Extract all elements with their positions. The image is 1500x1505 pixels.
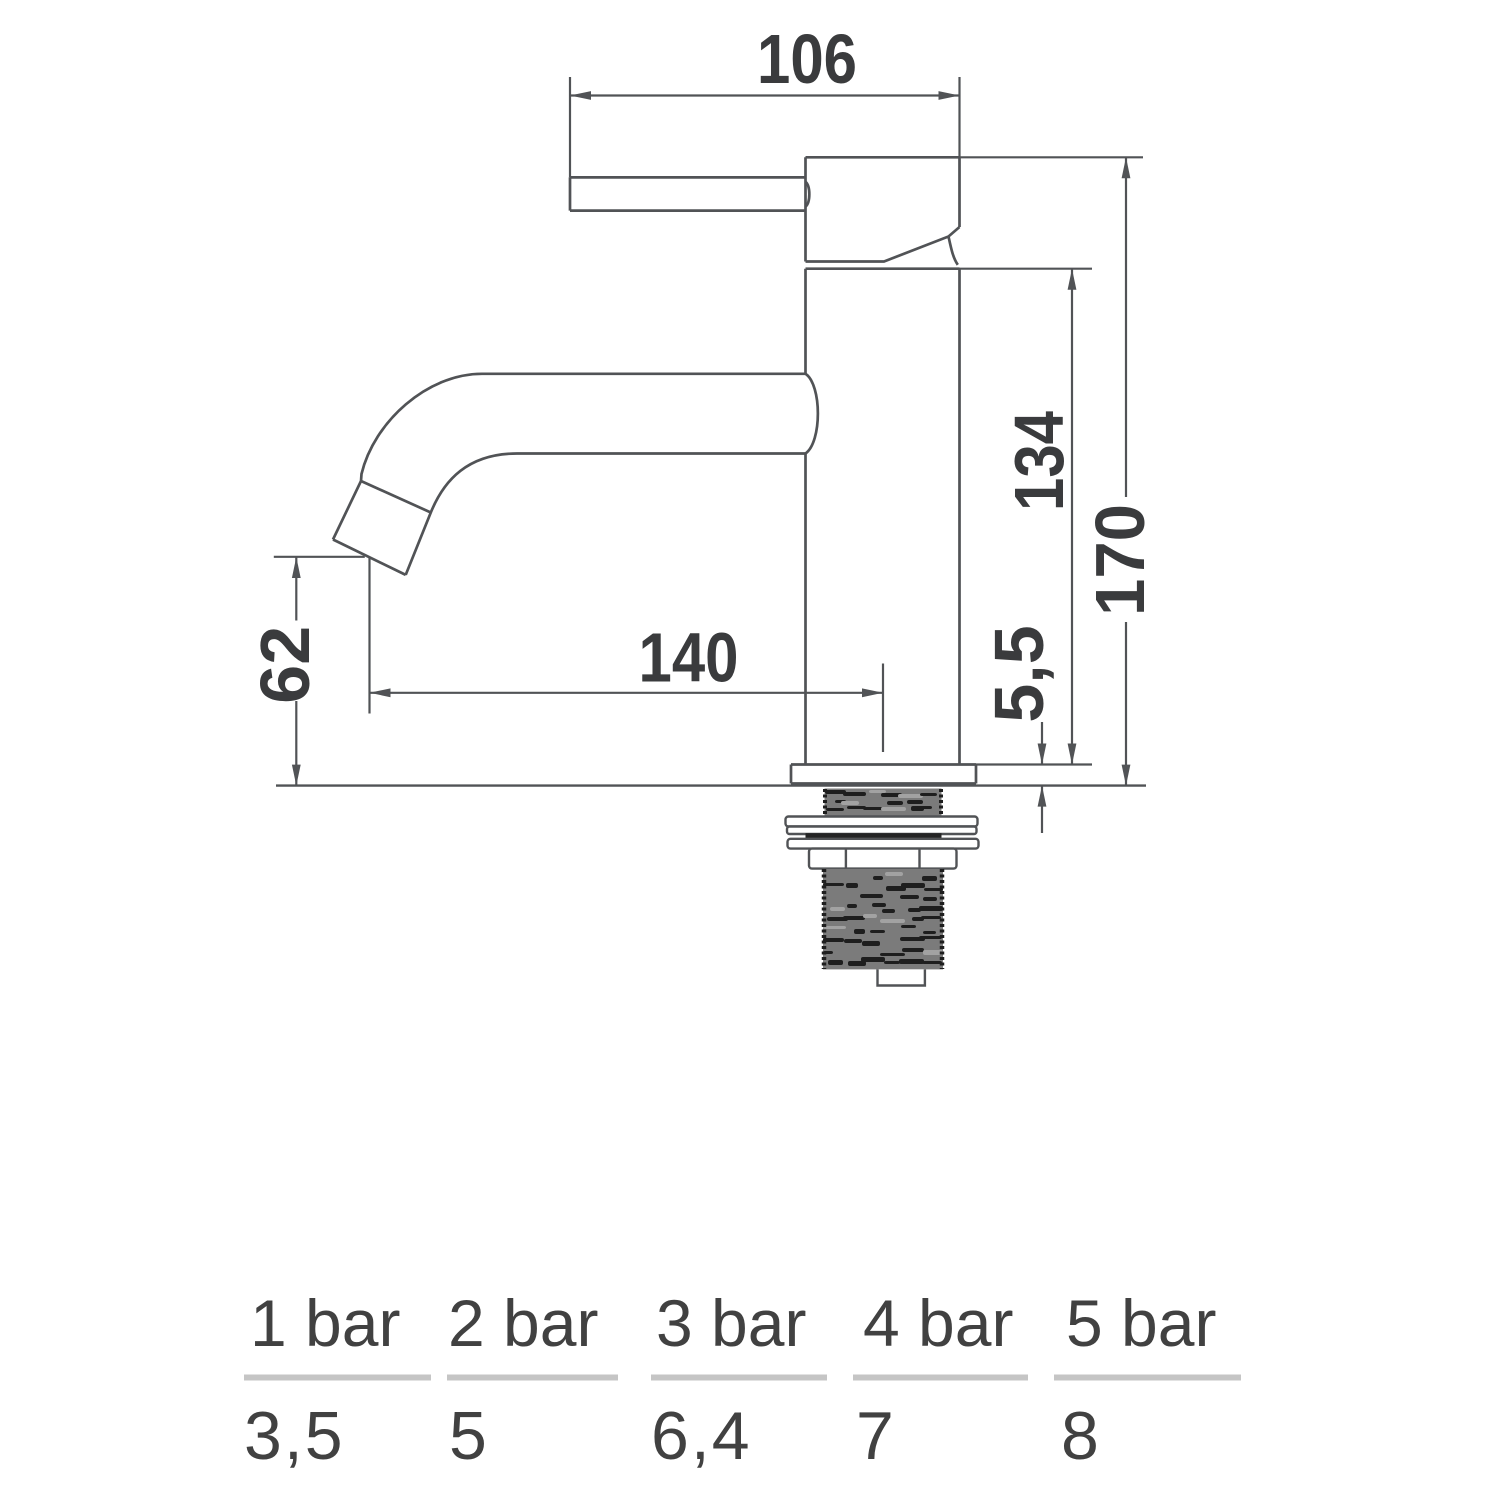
svg-text:1 bar: 1 bar [250, 1286, 400, 1360]
svg-text:106: 106 [757, 20, 857, 98]
svg-text:3,5: 3,5 [244, 1398, 345, 1474]
svg-text:170: 170 [1081, 504, 1159, 616]
svg-text:140: 140 [639, 619, 739, 697]
svg-text:4 bar: 4 bar [863, 1286, 1013, 1360]
svg-text:5: 5 [449, 1398, 489, 1474]
svg-text:8: 8 [1061, 1398, 1101, 1474]
svg-text:7: 7 [856, 1398, 896, 1474]
svg-text:134: 134 [1000, 411, 1078, 511]
svg-text:2 bar: 2 bar [448, 1286, 598, 1360]
svg-text:6,4: 6,4 [651, 1398, 752, 1474]
svg-text:3 bar: 3 bar [656, 1286, 806, 1360]
svg-text:5,5: 5,5 [980, 625, 1058, 722]
svg-text:5 bar: 5 bar [1066, 1286, 1216, 1360]
svg-text:62: 62 [246, 626, 324, 704]
